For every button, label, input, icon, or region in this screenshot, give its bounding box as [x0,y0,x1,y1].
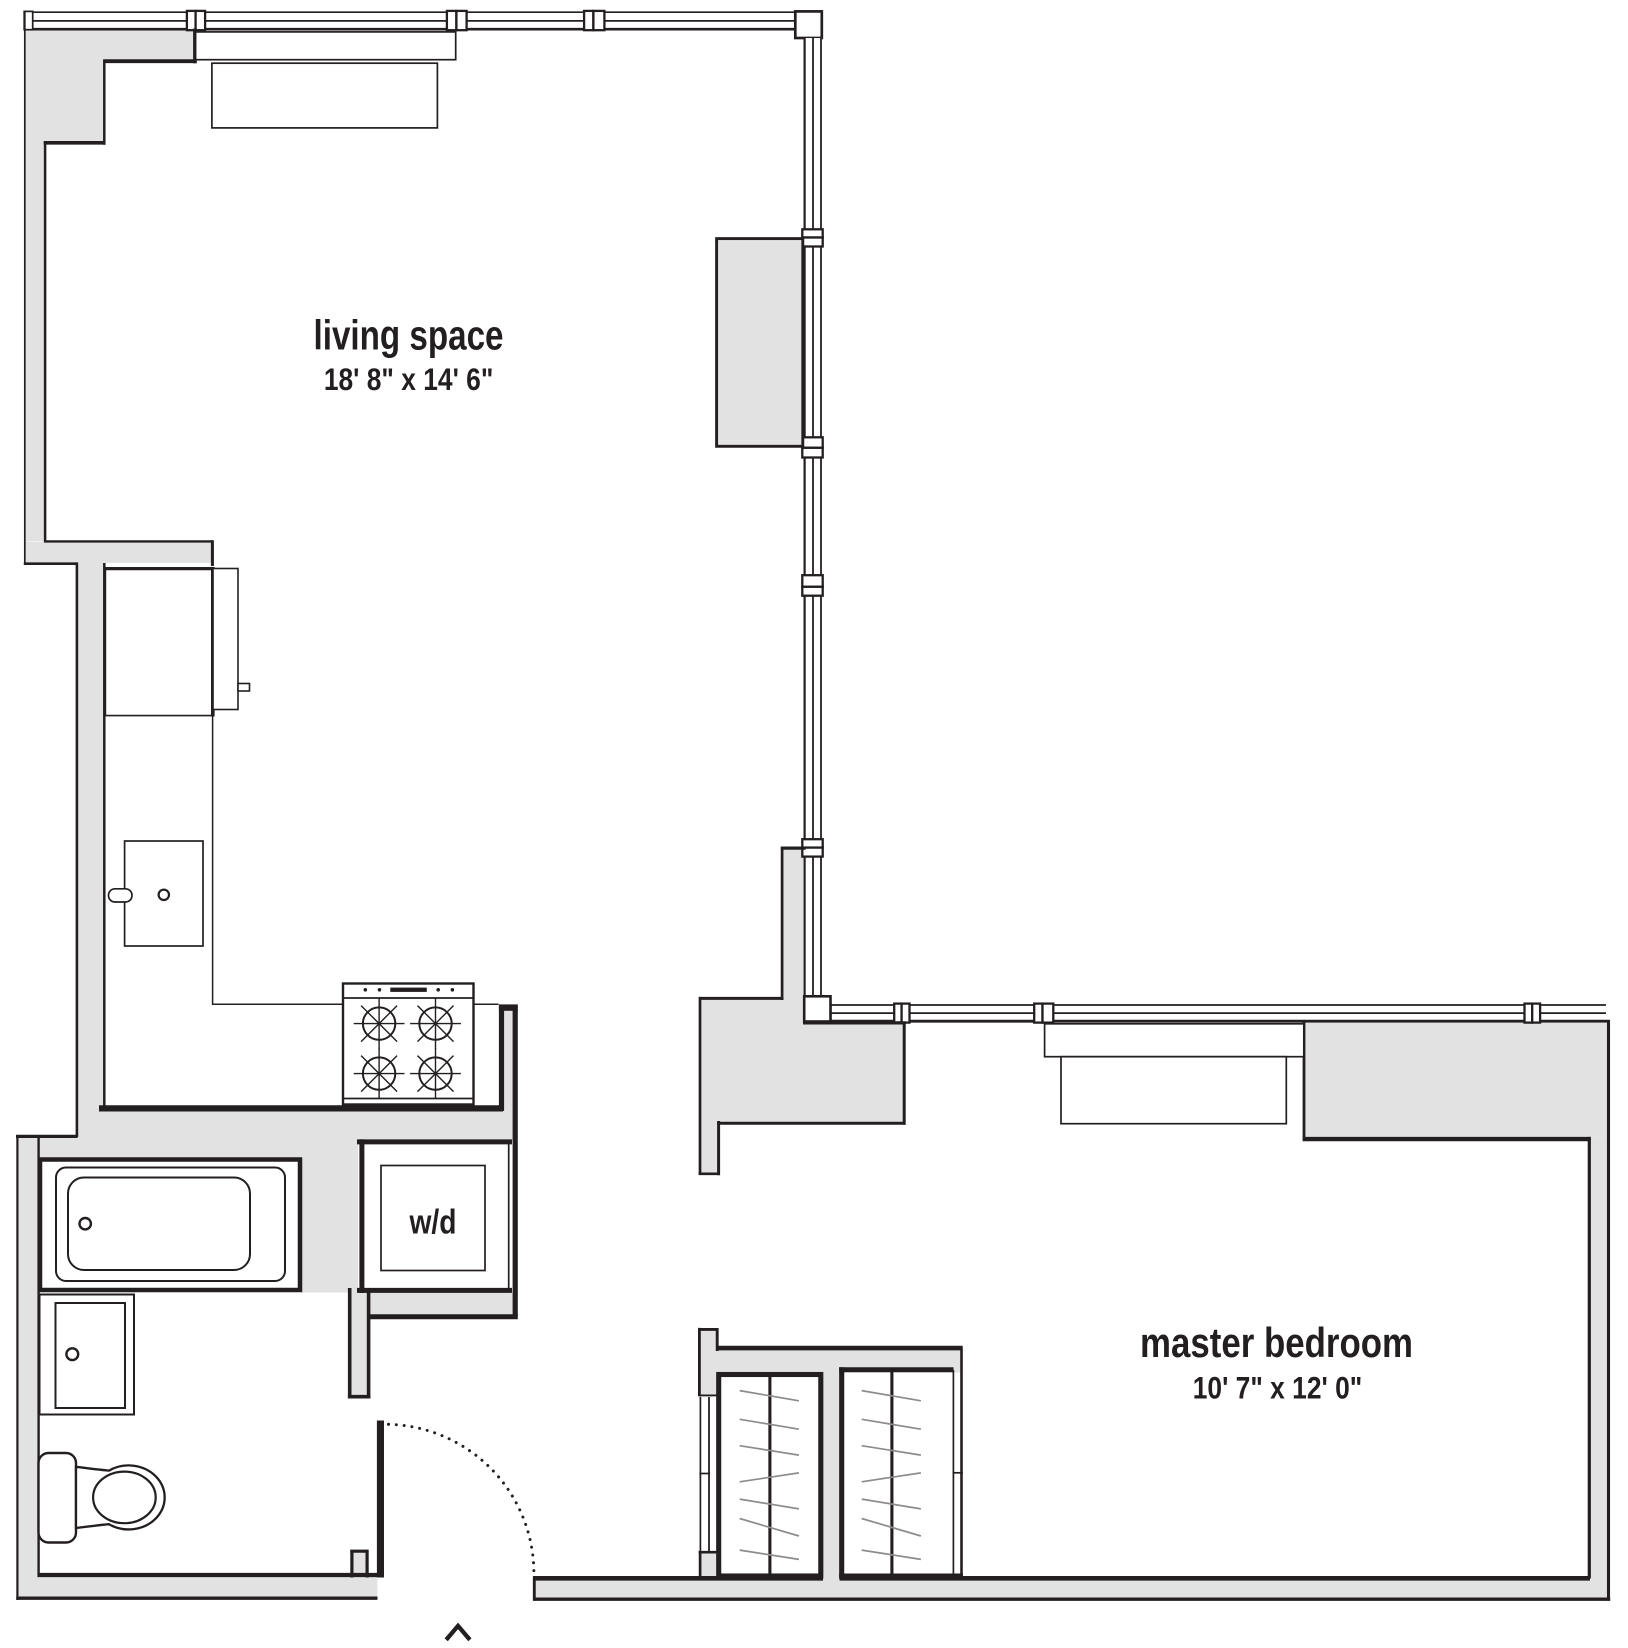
svg-text:10' 7" x 12' 0": 10' 7" x 12' 0" [1193,1370,1363,1406]
svg-text:living space: living space [314,311,504,358]
svg-text:master bedroom: master bedroom [1140,1319,1413,1366]
svg-text:18' 8" x 14' 6": 18' 8" x 14' 6" [324,361,494,397]
svg-text:w/d: w/d [409,1204,457,1242]
